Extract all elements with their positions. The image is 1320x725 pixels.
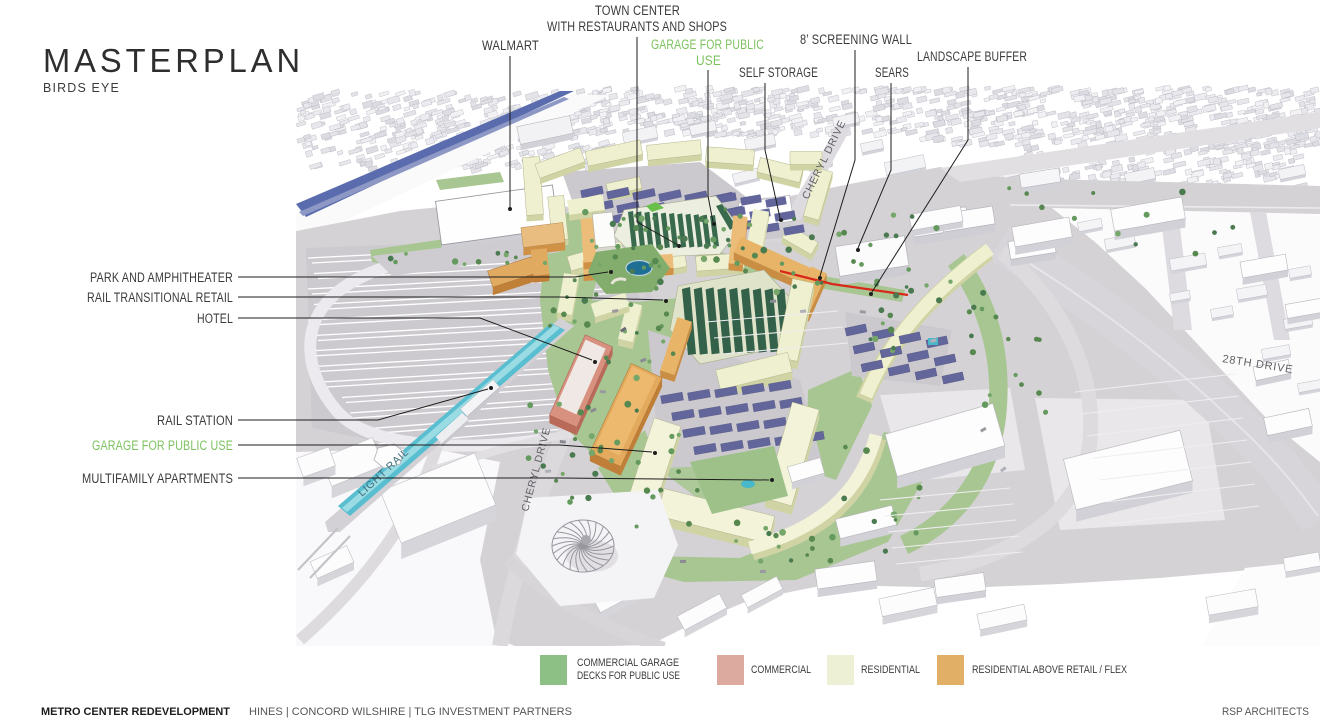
svg-text:COMMERCIAL: COMMERCIAL: [751, 664, 811, 676]
svg-text:PARK AND AMPHITHEATER: PARK AND AMPHITHEATER: [90, 270, 233, 285]
svg-text:LANDSCAPE BUFFER: LANDSCAPE BUFFER: [917, 49, 1027, 64]
svg-text:SELF STORAGE: SELF STORAGE: [739, 65, 818, 80]
svg-text:WALMART: WALMART: [482, 38, 539, 53]
svg-text:SEARS: SEARS: [875, 65, 909, 80]
svg-text:HOTEL: HOTEL: [197, 311, 233, 326]
svg-text:RAIL STATION: RAIL STATION: [157, 413, 233, 428]
svg-text:WITH RESTAURANTS AND SHOPS: WITH RESTAURANTS AND SHOPS: [547, 19, 727, 34]
svg-text:8’ SCREENING WALL: 8’ SCREENING WALL: [800, 32, 912, 47]
svg-text:MULTIFAMILY APARTMENTS: MULTIFAMILY APARTMENTS: [82, 471, 233, 486]
svg-text:DECKS FOR PUBLIC USE: DECKS FOR PUBLIC USE: [577, 670, 680, 682]
svg-text:HINES | CONCORD WILSHIRE | TLG: HINES | CONCORD WILSHIRE | TLG INVESTMEN…: [249, 706, 572, 718]
svg-text:RAIL TRANSITIONAL RETAIL: RAIL TRANSITIONAL RETAIL: [87, 290, 233, 305]
svg-text:GARAGE FOR PUBLIC: GARAGE FOR PUBLIC: [651, 37, 764, 52]
svg-text:USE: USE: [696, 53, 721, 68]
svg-text:METRO CENTER REDEVELOPMENT: METRO CENTER REDEVELOPMENT: [41, 706, 230, 718]
svg-text:TOWN CENTER: TOWN CENTER: [595, 3, 680, 18]
svg-text:BIRDS EYE: BIRDS EYE: [43, 81, 120, 95]
svg-text:RSP ARCHITECTS: RSP ARCHITECTS: [1222, 706, 1309, 718]
svg-text:COMMERCIAL GARAGE: COMMERCIAL GARAGE: [577, 657, 679, 669]
svg-text:RESIDENTIAL ABOVE RETAIL / FLE: RESIDENTIAL ABOVE RETAIL / FLEX: [972, 664, 1128, 676]
svg-text:RESIDENTIAL: RESIDENTIAL: [861, 664, 920, 676]
svg-text:MASTERPLAN: MASTERPLAN: [43, 42, 304, 79]
svg-text:GARAGE FOR PUBLIC USE: GARAGE FOR PUBLIC USE: [92, 438, 233, 453]
